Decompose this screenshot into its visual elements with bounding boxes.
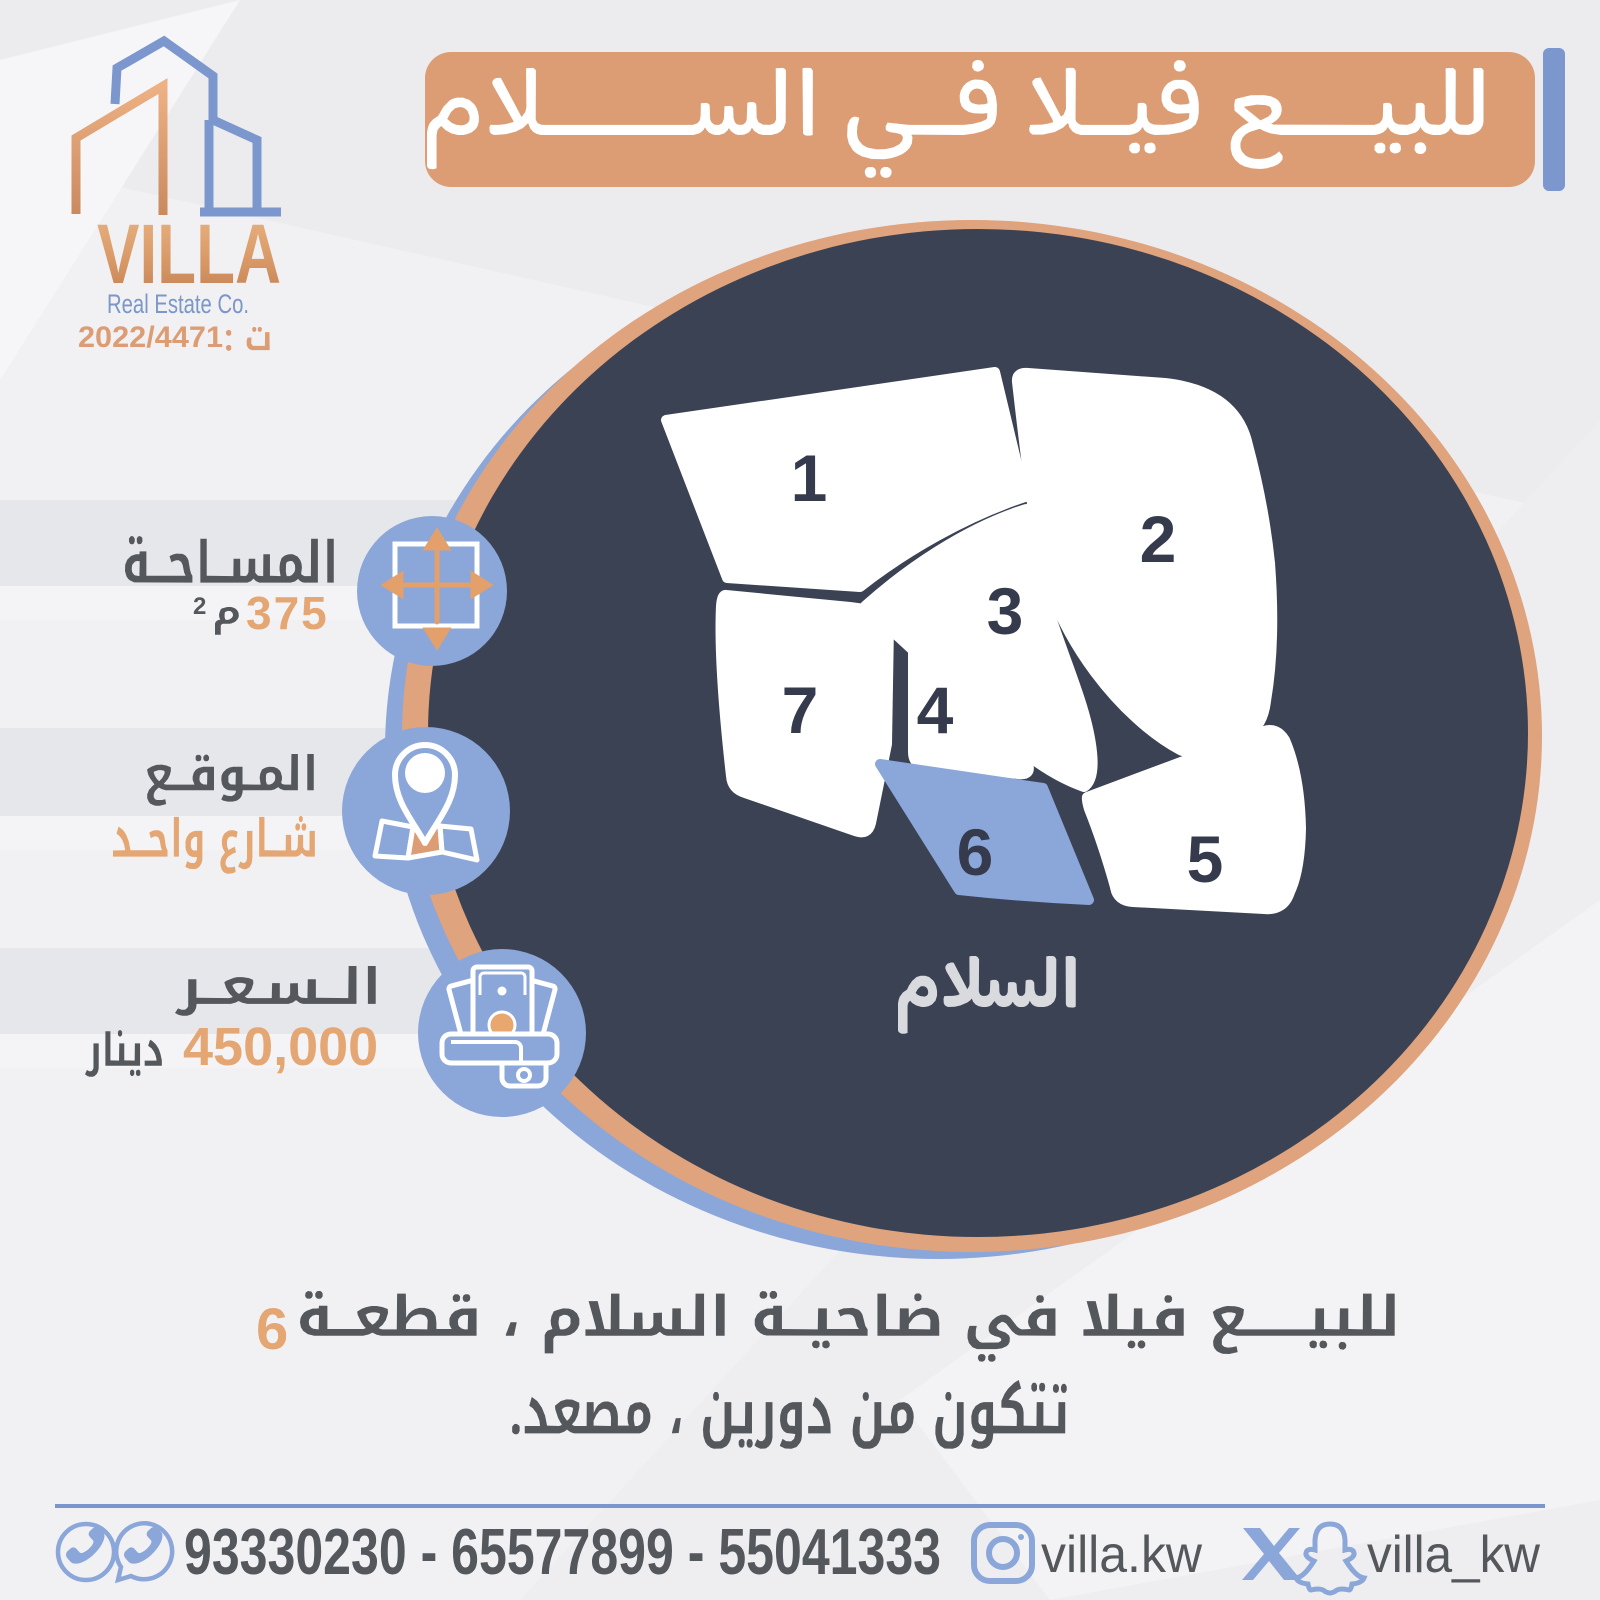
- svg-text:VILLA: VILLA: [97, 207, 281, 301]
- svg-text:2022/4471: 2022/4471: [78, 321, 223, 354]
- svg-text:2: 2: [1140, 502, 1177, 576]
- svg-text:93330230 - 65577899 - 55041333: 93330230 - 65577899 - 55041333: [184, 1515, 941, 1588]
- svg-text:villa.kw: villa.kw: [1041, 1526, 1202, 1584]
- svg-text:6: 6: [957, 815, 994, 889]
- svg-text:6: 6: [256, 1297, 288, 1362]
- svg-text:2: 2: [193, 593, 206, 620]
- svg-text:450,000: 450,000: [183, 1017, 378, 1077]
- svg-text:3: 3: [987, 574, 1024, 648]
- svg-text:villa_kw: villa_kw: [1367, 1526, 1540, 1584]
- svg-text:Real Estate Co.: Real Estate Co.: [107, 289, 249, 319]
- svg-text:5: 5: [1187, 822, 1224, 896]
- svg-text:1: 1: [791, 441, 828, 515]
- svg-text:375: 375: [246, 587, 329, 639]
- svg-text:7: 7: [782, 673, 819, 747]
- svg-text:4: 4: [917, 673, 954, 747]
